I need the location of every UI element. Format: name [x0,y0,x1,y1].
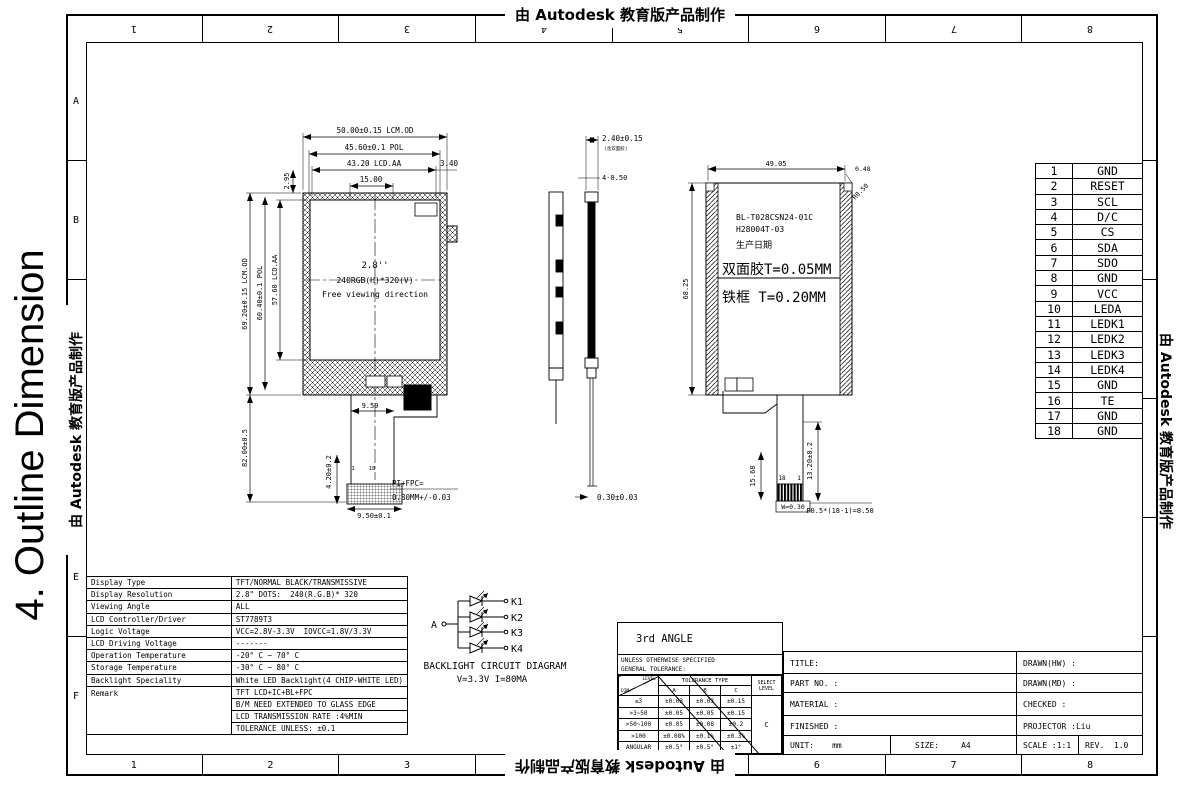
ruler-number: 7 [951,760,957,771]
pin-row: 12LEDK2 [1036,332,1143,347]
autodesk-watermark-bottom: 由 Autodesk 教育版产品制作 [505,750,735,784]
selected-level-cell: C [752,696,782,754]
ruler-number: 1 [131,23,137,34]
size-value: A4 [961,741,971,750]
pin-number-cell: 12 [1036,332,1073,347]
ruler-number: 1 [131,760,137,771]
pin-row: 11LEDK1 [1036,316,1143,331]
pin-number-cell: 7 [1036,255,1073,270]
pin-name-cell: RESET [1073,179,1143,194]
pin-name-cell: GND [1073,378,1143,393]
pin-number-cell: 15 [1036,378,1073,393]
spec-label-cell: Display Resolution [87,589,232,601]
pin-row: 9VCC [1036,286,1143,301]
projection-angle-row: 3rd ANGLE [618,623,782,655]
ruler-number: 2 [267,23,273,34]
part-row: PART NO. : DRAWN(MD) : [784,674,1142,693]
tol-value-cell: ±0.1% [690,730,721,742]
ruler-cell: 8 [1021,755,1158,776]
select-level-header: SELECT LEVEL [752,676,782,696]
ruler-cell: 2 [202,755,339,776]
ruler-cell: 6 [748,755,885,776]
spec-label-cell: LCD Controller/Driver [87,613,232,625]
material-field: MATERIAL : [784,693,1017,716]
ruler-number: 6 [814,23,820,34]
tol-range-cell: ≤3 [619,696,659,708]
spec-value-cell: TOLERANCE UNLESS: ±0.1 [231,723,407,735]
pin-name-cell: LEDA [1073,301,1143,316]
title-row: TITLE: DRAWN(HW) : [784,652,1142,674]
size-field: SIZE:A4 [891,736,1017,754]
ruler-cell: 3 [338,755,475,776]
pin-number-cell: 13 [1036,347,1073,362]
pin-name-cell: CS [1073,225,1143,240]
pin-number-cell: 2 [1036,179,1073,194]
ruler-cell: 3 [338,14,475,42]
autodesk-watermark-top: 由 Autodesk 教育版产品制作 [505,0,735,28]
tolerance-type-header: TOLERANCE TYPE [659,676,752,686]
ruler-cell: 2 [202,14,339,42]
ruler-cell: 7 [885,14,1022,42]
tol-value-cell: ±0.15 [721,707,752,719]
spec-value-cell: TFT LCD+IC+BL+FPC [231,686,407,698]
tol-value-cell: ±0.05 [659,707,690,719]
spec-label-cell: Logic Voltage [87,625,232,637]
spec-label-cell: Operation Temperature [87,650,232,662]
ruler-cell: A [66,42,86,160]
tolerance-table: LEVEL DIM. TOLERANCE TYPE SELECT LEVEL A… [618,675,782,754]
ruler-cell: 6 [748,14,885,42]
select-label: LEVEL [752,686,781,692]
spec-row: LCD Driving Voltage------- [87,637,408,649]
pin-row: 2RESET [1036,179,1143,194]
pin-number-cell: 14 [1036,362,1073,377]
pin-name-cell: LEDK3 [1073,347,1143,362]
tol-value-cell: ±0.3% [721,730,752,742]
ruler-number: 6 [814,760,820,771]
pin-name-cell: TE [1073,393,1143,408]
ruler-number: 2 [267,760,273,771]
spec-row: RemarkTFT LCD+IC+BL+FPC [87,686,408,698]
tol-value-cell: ±0.08 [690,719,721,731]
ruler-cell [1143,636,1158,755]
tolerance-row: ≤3 ±0.03 ±0.03 ±0.15 C [619,696,782,708]
material-row: MATERIAL : CHECKED : [784,693,1142,716]
pin-name-cell: LEDK1 [1073,316,1143,331]
spec-value-cell: -20° C ~ 70° C [231,650,407,662]
tol-value-cell: ±0.05 [659,719,690,731]
pin-number-cell: 4 [1036,209,1073,224]
pin-row: 14LEDK4 [1036,362,1143,377]
ruler-cell [1143,160,1158,279]
ruler-cell: 8 [1021,14,1158,42]
spec-table: Display TypeTFT/NORMAL BLACK/TRANSMISSIV… [86,576,408,735]
tol-col-header: B [690,686,721,696]
ruler-cell [1143,42,1158,160]
ruler-letter: F [73,691,79,702]
level-label: LEVEL [642,677,656,682]
spec-label-cell: Display Type [87,577,232,589]
unit-label: UNIT: [790,741,814,750]
pin-number-cell: 18 [1036,424,1073,439]
pin-name-cell: LEDK4 [1073,362,1143,377]
pin-name-cell: D/C [1073,209,1143,224]
spec-value-cell: TFT/NORMAL BLACK/TRANSMISSIVE [231,577,407,589]
pin-row: 4D/C [1036,209,1143,224]
ruler-cell: 1 [66,14,202,42]
pin-name-cell: SDO [1073,255,1143,270]
drawn-hw-field: DRAWN(HW) : [1017,652,1142,674]
size-label: SIZE: [915,741,939,750]
ruler-letter: B [73,215,79,226]
spec-label-cell: Viewing Angle [87,601,232,613]
pin-name-cell: LEDK2 [1073,332,1143,347]
spec-value-cell: VCC=2.8V-3.3V IOVCC=1.8V/3.3V [231,625,407,637]
pin-number-cell: 16 [1036,393,1073,408]
drawn-md-field: DRAWN(MD) : [1017,674,1142,693]
pin-name-cell: VCC [1073,286,1143,301]
title-field: TITLE: [784,652,1017,674]
spec-row: Display TypeTFT/NORMAL BLACK/TRANSMISSIV… [87,577,408,589]
pin-row: 17GND [1036,408,1143,423]
pin-number-cell: 6 [1036,240,1073,255]
tol-value-cell: ±0.08% [659,730,690,742]
pin-number-cell: 8 [1036,271,1073,286]
pin-row: 18GND [1036,424,1143,439]
ruler-number: 7 [951,23,957,34]
tol-range-cell: >50~100 [619,719,659,731]
pin-row: 7SDO [1036,255,1143,270]
tol-value-cell: ±0.2 [721,719,752,731]
dim-header-label: DIM. [621,689,632,694]
spec-label-cell: Storage Temperature [87,662,232,674]
ruler-cell: 1 [66,755,202,776]
unit-field: UNIT:mm [784,736,891,754]
pin-row: 3SCL [1036,194,1143,209]
tolerance-note-line: UNLESS OTHERWISE SPECIFIED [621,656,782,665]
pin-row: 8GND [1036,271,1143,286]
tol-value-cell: ±0.03 [659,696,690,708]
tolerance-notes: UNLESS OTHERWISE SPECIFIED GENERAL TOLER… [618,655,782,675]
pin-number-cell: 9 [1036,286,1073,301]
pin-number-cell: 11 [1036,316,1073,331]
tol-col-header: C [721,686,752,696]
spec-row: Operation Temperature-20° C ~ 70° C [87,650,408,662]
spec-row: Display Resolution2.8" DOTS: 240(R.G.B)*… [87,589,408,601]
ruler-cell: F [66,636,86,755]
ruler-number: 8 [1087,760,1093,771]
tol-range-cell: >3~50 [619,707,659,719]
spec-remark-label-cell: Remark [87,686,232,735]
pin-name-cell: GND [1073,424,1143,439]
tol-col-header: A [659,686,690,696]
unit-value: mm [832,741,842,750]
autodesk-watermark-right: 由 Autodesk 教育版产品制作 [1156,306,1176,556]
spec-row: Storage Temperature-30° C ~ 80° C [87,662,408,674]
spec-label-cell: Backlight Speciality [87,674,232,686]
spec-value-cell: ST7789T3 [231,613,407,625]
pin-number-cell: 17 [1036,408,1073,423]
checked-field: CHECKED : [1017,693,1142,716]
pin-name-cell: SCL [1073,194,1143,209]
spec-row: Viewing AngleALL [87,601,408,613]
pin-number-cell: 5 [1036,225,1073,240]
spec-row: LCD Controller/DriverST7789T3 [87,613,408,625]
pin-row: 6SDA [1036,240,1143,255]
unit-scale-row: UNIT:mm SIZE:A4 SCALE :1:1 REV. 1.0 [784,736,1142,754]
titleblock-fields-section: TITLE: DRAWN(HW) : PART NO. : DRAWN(MD) … [783,651,1143,755]
rev-field: REV. 1.0 [1079,736,1142,754]
tolerance-note-line: GENERAL TOLERANCE: [621,665,782,674]
finished-row: FINISHED : PROJECTOR :Liu [784,716,1142,736]
projection-angle-label: 3rd ANGLE [618,633,693,645]
section-title: 4. Outline Dimension [8,155,52,715]
tol-value-cell: ±0.03 [690,696,721,708]
scale-field: SCALE :1:1 [1017,736,1079,754]
pin-row: 1GND [1036,164,1143,179]
spec-row: Backlight SpecialityWhite LED Backlight(… [87,674,408,686]
ruler-cell: 7 [885,755,1022,776]
titleblock-tolerance-section: 3rd ANGLE UNLESS OTHERWISE SPECIFIED GEN… [617,622,783,755]
pin-row: 16TE [1036,393,1143,408]
ruler-letter: A [73,96,79,107]
pin-name-cell: GND [1073,408,1143,423]
ruler-number: 8 [1087,23,1093,34]
pin-row: 10LEDA [1036,301,1143,316]
pin-number-cell: 1 [1036,164,1073,179]
pin-name-cell: GND [1073,164,1143,179]
spec-value-cell: White LED Backlight(4 CHIP-WHITE LED) [231,674,407,686]
ruler-number: 3 [404,23,410,34]
pin-name-cell: GND [1073,271,1143,286]
pin-row: 15GND [1036,378,1143,393]
pin-number-cell: 3 [1036,194,1073,209]
ruler-letter: E [73,572,79,583]
tol-range-cell: >100 [619,730,659,742]
spec-value-cell: ALL [231,601,407,613]
level-dim-header-cell: LEVEL DIM. [619,676,659,696]
part-no-field: PART NO. : [784,674,1017,693]
pin-row: 5CS [1036,225,1143,240]
pin-table: 1GND 2RESET 3SCL 4D/C 5CS 6SDA 7SDO 8GND… [1035,163,1143,439]
projector-field: PROJECTOR :Liu [1017,716,1142,736]
ruler-cell: B [66,160,86,279]
finished-field: FINISHED : [784,716,1017,736]
drawing-sheet: 50.00±0.15 LCM.OD 45.60±0.1 POL 43.20 LC… [0,0,1186,790]
ruler-number: 3 [404,760,410,771]
spec-value-cell: ------- [231,637,407,649]
spec-value-cell: B/M NEED EXTENDED TO GLASS EDGE [231,698,407,710]
autodesk-watermark-left: 由 Autodesk 教育版产品制作 [66,305,86,555]
spec-value-cell: -30° C ~ 80° C [231,662,407,674]
spec-value-cell: LCD TRANSMISSION RATE :4%MIN [231,711,407,723]
spec-row: Logic VoltageVCC=2.8V-3.3V IOVCC=1.8V/3.… [87,625,408,637]
tol-value-cell: ±0.15 [721,696,752,708]
pin-number-cell: 10 [1036,301,1073,316]
tol-value-cell: ±0.05 [690,707,721,719]
spec-label-cell: LCD Driving Voltage [87,637,232,649]
pin-row: 13LEDK3 [1036,347,1143,362]
spec-value-cell: 2.8" DOTS: 240(R.G.B)* 320 [231,589,407,601]
pin-name-cell: SDA [1073,240,1143,255]
